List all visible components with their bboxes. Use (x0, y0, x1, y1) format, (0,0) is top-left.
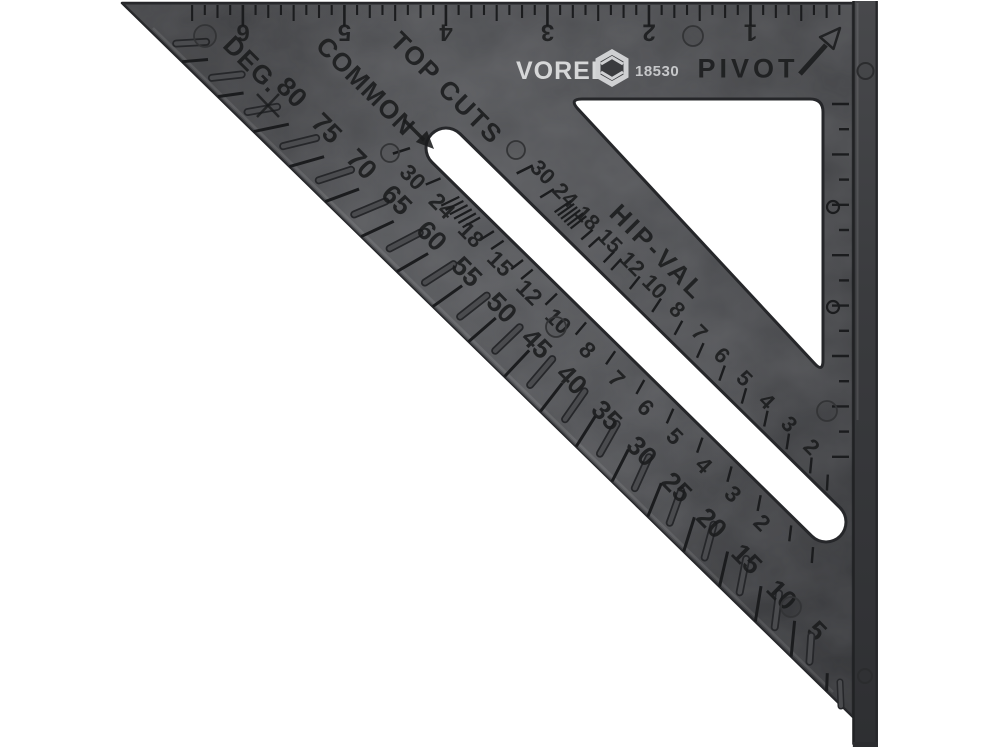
dimple (546, 317, 566, 337)
inch-number: 3 (541, 19, 554, 46)
dimple (817, 401, 837, 421)
degree-tick (827, 673, 828, 691)
dimple (683, 26, 703, 46)
hip-val-tick (827, 475, 828, 491)
inch-number: 4 (439, 19, 453, 46)
inch-number: 1 (744, 19, 757, 46)
dimple (507, 141, 525, 159)
degree-slot-mark (810, 636, 812, 662)
dimple (781, 597, 801, 617)
product-photo-stage: 123456 8075706560555045403530252015105 3… (0, 0, 1000, 750)
dimple (194, 25, 216, 47)
surface-shading (0, 0, 1000, 750)
degree-tick (182, 60, 208, 62)
common-tick (812, 547, 813, 563)
speed-square-photo: 123456 8075706560555045403530252015105 3… (0, 0, 1000, 750)
brand-name: VOREL (516, 57, 607, 85)
fence (853, 1, 879, 747)
tip-slot-mark (840, 682, 841, 706)
hip-val-tick (810, 457, 811, 473)
dimple (381, 144, 399, 162)
inch-number: 2 (642, 19, 655, 46)
model-number: 18530 (635, 63, 679, 80)
pivot-label: PIVOT (697, 53, 798, 83)
